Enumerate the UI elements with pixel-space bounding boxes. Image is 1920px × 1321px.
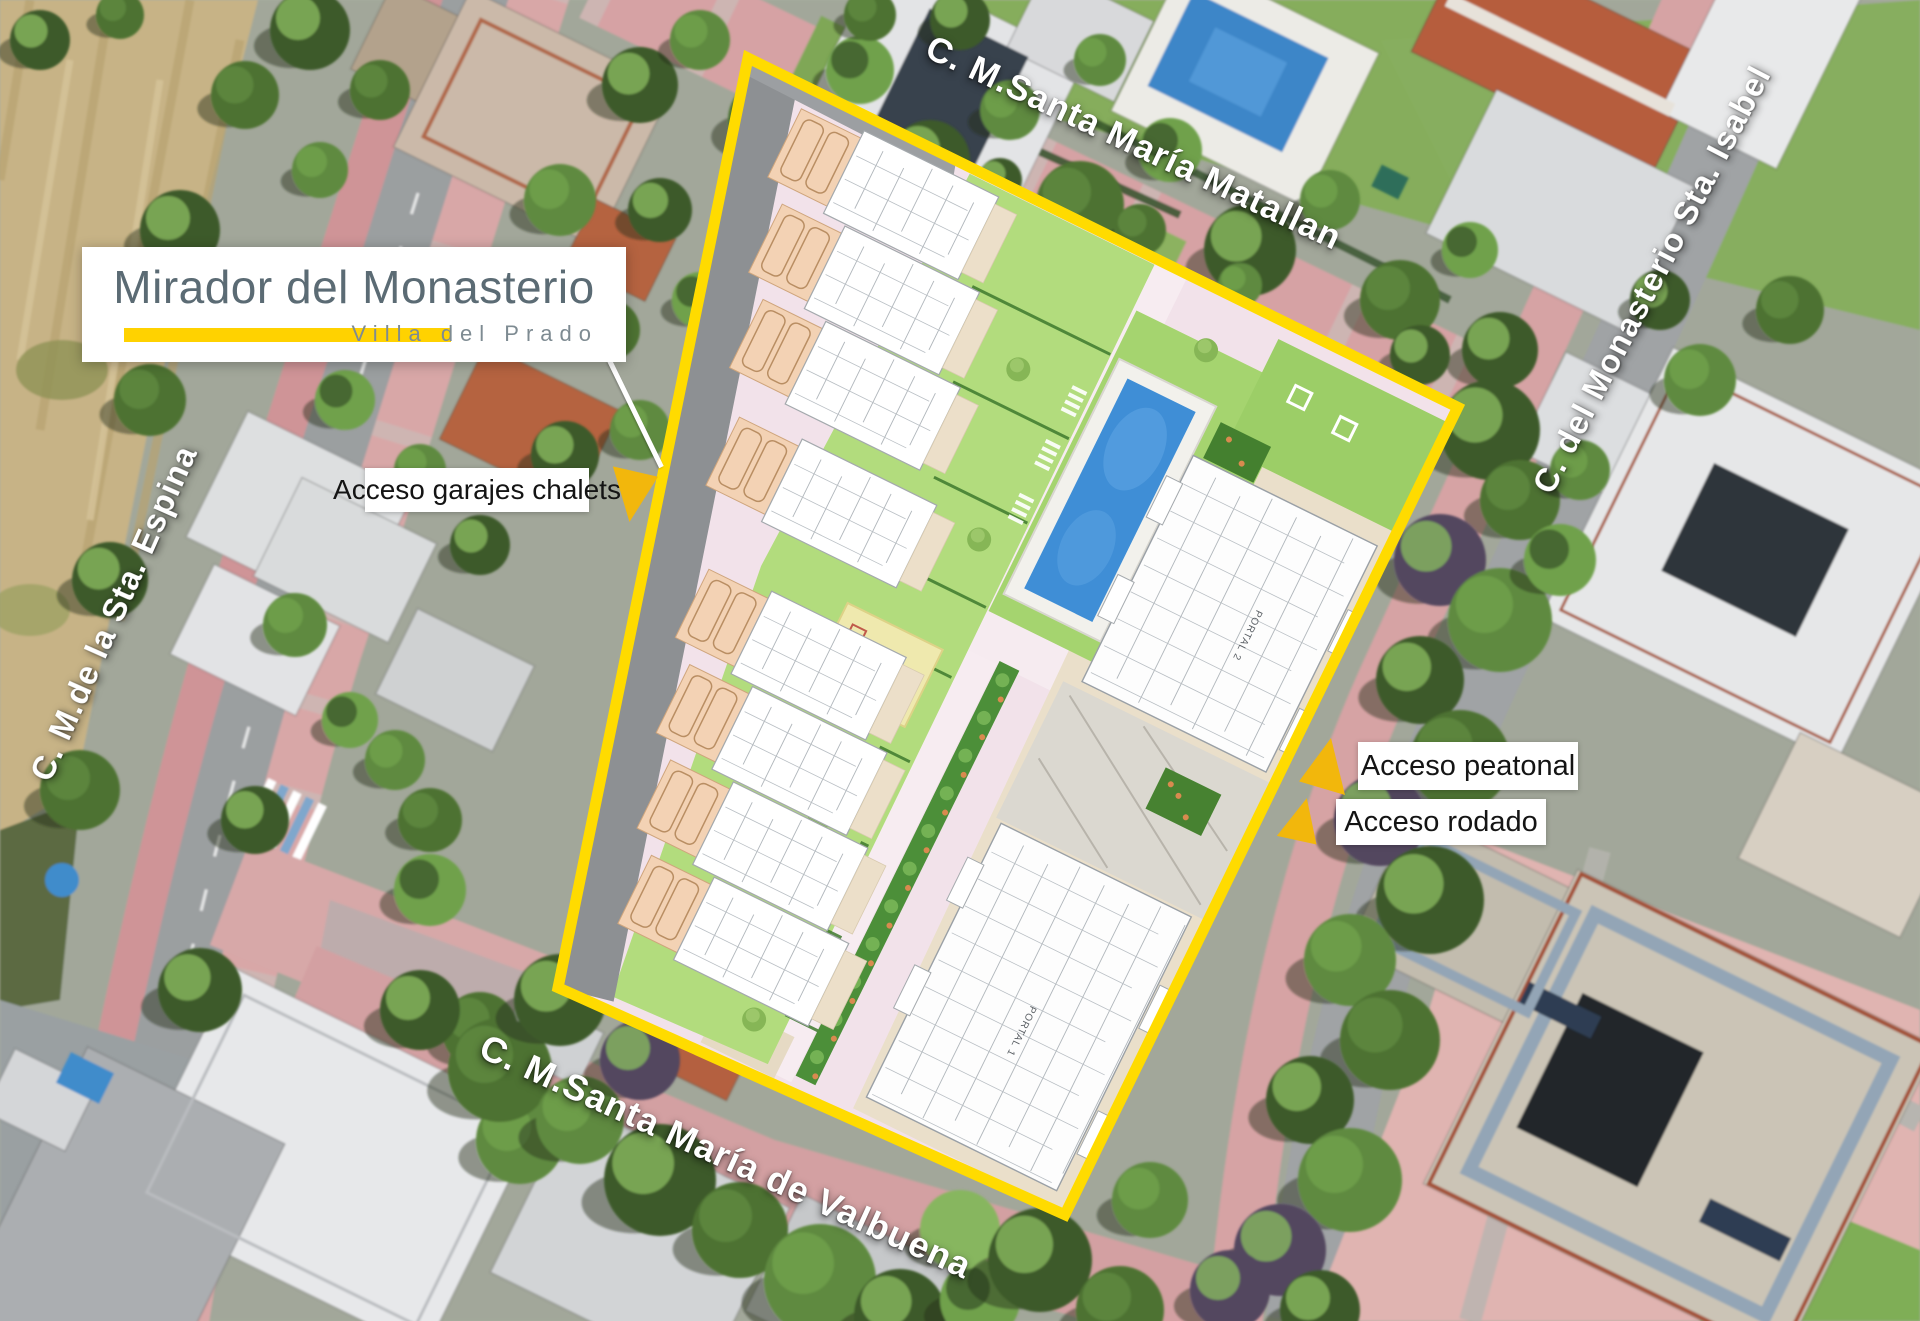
project-title: Mirador del Monasterio bbox=[82, 260, 626, 314]
pedestrian-access-label: Acceso peatonal bbox=[1358, 742, 1578, 790]
satellite-map: PORTAL 2 PORTAL 1 bbox=[0, 0, 1920, 1321]
garage-access-label: Acceso garajes chalets bbox=[365, 468, 589, 512]
project-logo: Mirador del Monasterio Villa del Prado bbox=[82, 247, 626, 362]
vehicle-access-label: Acceso rodado bbox=[1336, 799, 1546, 845]
project-subtitle: Villa del Prado bbox=[352, 321, 598, 347]
aerial-masterplan-view: PORTAL 2 PORTAL 1 Mirador del Monasterio… bbox=[0, 0, 1920, 1321]
